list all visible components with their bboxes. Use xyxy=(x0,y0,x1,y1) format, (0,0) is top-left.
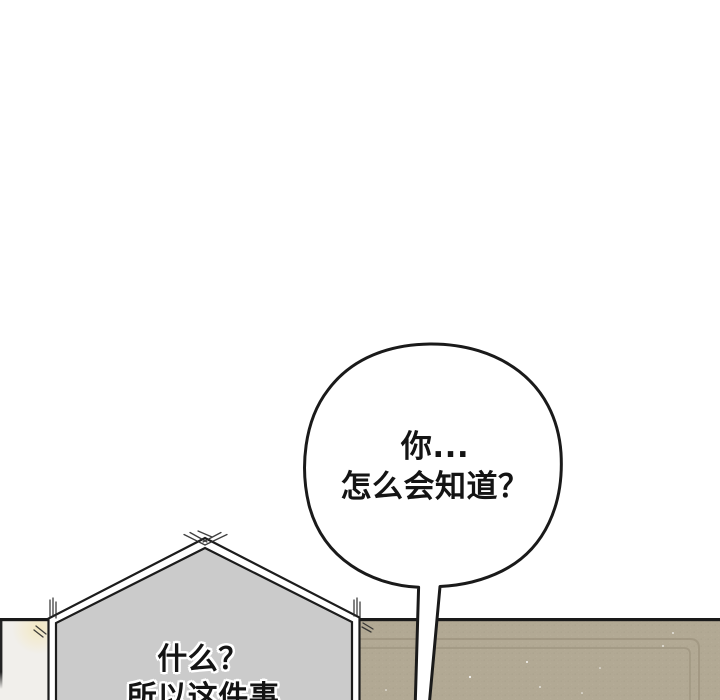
comic-panel: 你... 怎么会知道？ 什么？ 所以这件事 xyxy=(0,0,720,700)
left-wall-glow xyxy=(0,620,54,672)
wall-grain-texture xyxy=(348,620,720,700)
shout-line-2: 所以这件事 xyxy=(78,679,328,700)
pentagon-bubble-text: 什么？ 所以这件事 xyxy=(78,641,328,700)
round-bubble-text: 你... 怎么会知道？ xyxy=(310,427,560,507)
speech-line-2: 怎么会知道？ xyxy=(310,467,560,507)
left-wall-edge-shadow xyxy=(0,621,2,689)
left-wall xyxy=(0,620,54,700)
panel-artwork xyxy=(0,0,720,700)
wall xyxy=(348,620,720,700)
speech-line-1: 你... xyxy=(310,427,560,467)
shout-line-1: 什么？ xyxy=(78,641,328,679)
